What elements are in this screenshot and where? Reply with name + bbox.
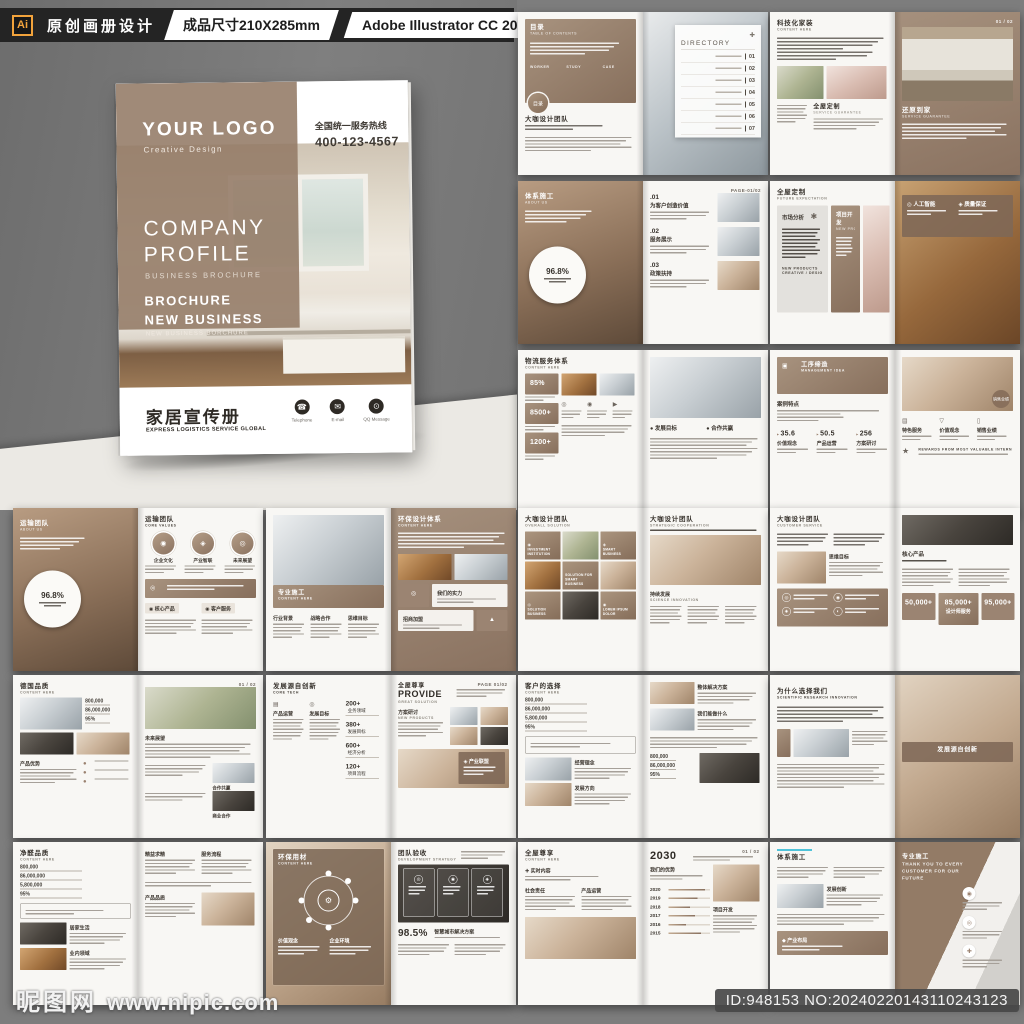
- text-bar: [958, 214, 982, 216]
- column: [777, 531, 830, 547]
- stock-design-poster: YOUR LOGO Creative Design 全国统一服务热线 400-1…: [0, 0, 1024, 1024]
- section-label: 方案研讨: [856, 439, 893, 447]
- text-bar: [977, 439, 995, 440]
- text-bar: [477, 889, 493, 891]
- panel-brownT: ◎ 人工智能◈ 质量保证: [902, 195, 1013, 237]
- column: ▸50.5: [817, 428, 854, 438]
- timeline-row: 2020: [650, 887, 710, 893]
- photo-placeholder: [273, 515, 384, 585]
- photo-placeholder: [713, 865, 760, 902]
- diagram-node: [326, 924, 332, 930]
- column: ◈: [782, 606, 791, 616]
- spread-title: 体系施工: [777, 853, 888, 861]
- column: [561, 373, 596, 395]
- text-bar: [650, 451, 752, 452]
- logo-subtitle: Creative Design: [143, 144, 223, 154]
- text-bar: [650, 252, 687, 253]
- row: 发展创新: [777, 884, 888, 908]
- text-bar: [477, 886, 494, 888]
- stat: 98.5%: [398, 927, 431, 939]
- brochure-page: 目录TABLE OF CONTENTSWORKERSTUDYCASE目录大咖设计…: [518, 12, 643, 175]
- spread-subtitle: CREATIVE / DESIGN: [782, 271, 823, 275]
- directory-item: 03: [681, 75, 755, 87]
- text-bar: [201, 623, 249, 624]
- timeline-row: 2016: [650, 922, 710, 928]
- spread-title: 专业施工: [902, 853, 1013, 860]
- photo-block: [902, 515, 1013, 545]
- text-bar: [833, 877, 865, 878]
- item-number: .03: [650, 261, 714, 269]
- section-label: 政策扶持: [650, 270, 714, 278]
- text-bar: [525, 147, 632, 148]
- column: STUDY: [566, 64, 599, 69]
- photo-placeholder: [863, 205, 890, 312]
- triangle-icon: ▲: [481, 616, 502, 622]
- column: 精益求精: [145, 849, 198, 876]
- row: ▸35.6▸50.5▸256: [777, 428, 888, 438]
- column: 2030: [650, 849, 690, 863]
- photo-placeholder: [717, 227, 759, 256]
- placeholder-text-bars: [587, 410, 610, 418]
- column: [481, 707, 509, 725]
- text-bar: [575, 771, 628, 772]
- panel-glass: 环保用材CONTENT HERE⚙价值观念企业环境: [273, 849, 384, 985]
- text-bar: [398, 546, 464, 548]
- row: ◈: [782, 606, 830, 616]
- text-bar: [902, 572, 950, 573]
- row: 我们的优势202020192018201720162015项目开发: [650, 865, 761, 940]
- contact-icons: ☎ Telephone ✉ E-mail ⊙ QQ Message: [291, 398, 390, 422]
- text-bar: [145, 863, 192, 864]
- row: 产品优势●●●: [20, 758, 131, 785]
- section-label: 发展方向: [575, 784, 635, 792]
- text-bar: [587, 417, 599, 418]
- item-icon: ◎: [782, 593, 791, 602]
- text-bar: [530, 49, 609, 51]
- placeholder-text-bars: [725, 606, 759, 624]
- stat: 85,000+: [943, 598, 973, 606]
- circle-icon: ◉: [152, 532, 174, 554]
- text-bar: [201, 869, 251, 870]
- placeholder-text-bars: [525, 896, 578, 910]
- spacer: [782, 260, 823, 266]
- photo-block: [273, 515, 384, 585]
- directory-item-label-bar: [715, 92, 741, 94]
- text-bar: [273, 624, 304, 625]
- placeholder-text-bars: [348, 624, 382, 638]
- circle-label: 未来展望: [233, 556, 252, 563]
- panel-brown2: 50,000+: [902, 593, 935, 620]
- row: [902, 567, 1013, 589]
- text-bar: [777, 764, 885, 765]
- spacer: [777, 908, 888, 912]
- panel-brown: ◎◉◈◐: [777, 588, 888, 626]
- text-bar: [278, 953, 304, 955]
- text-bar: [817, 449, 848, 450]
- text-bar: [713, 931, 740, 932]
- header-title: 原创画册设计: [47, 15, 155, 36]
- text-bar: [561, 417, 573, 418]
- column: ✱: [810, 212, 822, 222]
- photo-placeholder: [201, 892, 254, 925]
- text-bar: [650, 612, 678, 613]
- text-bar: [777, 118, 805, 119]
- text-bar: [443, 886, 460, 888]
- text-bar: [398, 722, 443, 723]
- text-bar: [575, 803, 610, 804]
- column: 发展方向: [575, 783, 635, 807]
- section-label: 我们的优势: [650, 866, 710, 874]
- column: 经营理念: [575, 757, 635, 781]
- column: ◎: [150, 583, 164, 592]
- core-product-chip: ◉ 核心产品: [145, 603, 179, 614]
- text-bar: [836, 240, 852, 242]
- coop-label: ● 合作共赢: [706, 424, 759, 432]
- text-bar: [525, 137, 632, 138]
- text-bar: [278, 949, 317, 951]
- text-bar: [827, 901, 877, 902]
- column: [398, 942, 451, 957]
- text-bar: [278, 946, 320, 948]
- watermark-url: www.nipic.com: [107, 990, 279, 1016]
- text-bar: [777, 55, 867, 57]
- text-bar: [403, 624, 462, 625]
- stat-item: 200+业务领域: [346, 699, 384, 716]
- brochure-page: 发展源自创新CORE TECH▤产品运营◎发展目标200+业务领域380+发展目…: [266, 675, 391, 838]
- column: [845, 592, 882, 602]
- section-label: 发展目标: [309, 709, 342, 717]
- text-bar: [725, 606, 757, 607]
- timeline-year: 2020: [650, 887, 665, 893]
- text-bar: [464, 770, 494, 772]
- photo-block: [650, 709, 694, 731]
- spread-title: 大咖设计团队: [777, 515, 888, 523]
- spread-pro-construction: 专业施工CONTENT HERE行业背景战略合作思维目标环保设计体系CONTEN…: [266, 508, 516, 671]
- text-bar: [777, 877, 809, 878]
- section-label: 思维目标: [348, 614, 382, 622]
- photo-block: [599, 373, 634, 395]
- location-icon: ◉: [587, 401, 592, 407]
- circle-label: 产业智联: [193, 556, 212, 563]
- text-bar: [525, 140, 626, 141]
- placeholder-text-bars: [434, 937, 507, 938]
- section-label: 价值观念: [278, 936, 326, 944]
- spacer: [902, 682, 1013, 742]
- row: .02服务展示: [650, 227, 761, 256]
- watermark-logo: 昵图网: [16, 982, 97, 1017]
- stat: ▸50.5: [817, 429, 854, 437]
- directory-item-number: 07: [745, 125, 755, 131]
- cover-title-line1: COMPANY: [143, 216, 265, 241]
- text-bar: [650, 280, 709, 281]
- service-icon: ▤: [902, 418, 908, 424]
- stat-divider: [346, 778, 379, 779]
- cover-bottom-band: 家居宣传册 EXPRESS LOGISTICS SERVICE GLOBAL ☎…: [119, 386, 412, 456]
- row: ◈◐: [782, 606, 883, 616]
- text-bar: [525, 150, 591, 151]
- text-bar: [693, 859, 730, 860]
- text-bar: [777, 533, 828, 535]
- text-bar: [902, 569, 953, 570]
- row: 98.5%智慧城市解决方案: [398, 926, 509, 940]
- text-bar: [963, 963, 1000, 964]
- row: ◎◉: [782, 592, 883, 602]
- text-bar: [958, 569, 1009, 570]
- spread-transport-team: 运输团队ABOUT US96.8%运输团队CORE VALUES◉企业文化◈产业…: [13, 508, 263, 671]
- photo-block: [525, 783, 572, 806]
- text-bar: [145, 753, 250, 754]
- column: [717, 261, 759, 290]
- section-label: 产品优势: [20, 759, 80, 767]
- text-bar: [777, 420, 818, 421]
- photo-placeholder: [481, 707, 509, 725]
- stat-item: 600+经济分析: [346, 741, 384, 758]
- placeholder-text-bars: [561, 410, 584, 418]
- directory-title: DIRECTORY: [681, 39, 755, 50]
- text-bar: [794, 608, 828, 610]
- row: 思维目标: [777, 551, 888, 583]
- text-bar: [273, 738, 292, 739]
- text-bar: [687, 612, 715, 613]
- section-label: 持续发展: [650, 590, 761, 598]
- figure-label-bar: [85, 713, 110, 714]
- text-bar: [687, 609, 717, 610]
- spacer: [902, 545, 1013, 549]
- section-label: 服务展示: [650, 236, 714, 244]
- brochure-page: 环保设计体系CONTENT HERE◎我们的实力招商加盟▲: [391, 508, 516, 671]
- spacer: [777, 699, 888, 704]
- placeholder-text-bars: [309, 719, 342, 740]
- diagram-node: [299, 897, 305, 903]
- diagram-node: [326, 870, 332, 876]
- column: [599, 373, 634, 395]
- text-bar: [581, 902, 626, 903]
- column: ◎发展目标: [309, 699, 342, 783]
- row: ● 发展目标● 合作共赢: [650, 423, 761, 433]
- text-bar: [845, 612, 866, 614]
- text-bar: [827, 894, 883, 895]
- text-bar: [403, 628, 440, 629]
- text-bar: [777, 710, 878, 712]
- text-bar: [409, 893, 420, 895]
- placeholder-text-bars: [581, 896, 634, 910]
- text-bar: [145, 916, 176, 917]
- text-bar: [145, 757, 210, 758]
- figure-value: 86,000,000: [525, 706, 636, 712]
- text-bar: [525, 396, 555, 397]
- spacer: [20, 861, 131, 863]
- spread-subtitle: STRATEGIC COOPERATION: [650, 524, 761, 528]
- column: [481, 727, 509, 745]
- directory-item-label-bar: [715, 116, 741, 118]
- text-bar: [697, 702, 733, 703]
- tile-photo-cell: [563, 591, 599, 619]
- column: ◉企业文化: [145, 532, 182, 575]
- text-bar: [145, 765, 206, 766]
- brochure-page: 为什么选择我们SCIENTIFIC RESEARCH INNOVATION: [770, 675, 895, 838]
- column: [833, 531, 886, 547]
- placeholder-text-bars: [650, 529, 761, 531]
- column: 方案研讨: [856, 438, 893, 455]
- text-bar: [777, 108, 805, 109]
- text-bar: [464, 767, 496, 769]
- text-bar: [348, 624, 379, 625]
- panel-phwarm: ◈ 产业联盟: [398, 749, 509, 788]
- photo-block: [450, 727, 478, 745]
- cover-title-sub: BUSINESS BROCHURE: [145, 270, 262, 280]
- section-label: 特色服务: [902, 426, 936, 434]
- text-bar: [650, 249, 706, 250]
- photo-block: [525, 757, 572, 780]
- column: 800,00086,000,00095%: [85, 697, 129, 729]
- column: ◎: [403, 868, 434, 916]
- text-bar: [20, 541, 79, 543]
- text-bar: [525, 902, 570, 903]
- placeholder-text-bars: [777, 37, 888, 49]
- figure-label-bar: [650, 769, 676, 770]
- stat: 95,000+: [986, 598, 1009, 606]
- text-bar: [902, 130, 995, 132]
- text-bar: [581, 899, 628, 900]
- photo-placeholder: [525, 917, 636, 959]
- photo-block: [777, 551, 826, 583]
- text-bar: [26, 913, 74, 914]
- row: [777, 66, 888, 99]
- row: 方案研讨NEW PRODUCTS: [398, 707, 509, 745]
- text-bar: [525, 876, 598, 877]
- text-bar: [525, 210, 592, 212]
- column: ★: [902, 447, 915, 457]
- text-bar: [70, 965, 120, 966]
- placeholder-text-bars: [185, 565, 222, 573]
- column: ▶: [613, 399, 636, 420]
- placeholder-text-bars: [525, 455, 558, 460]
- text-bar: [697, 726, 749, 727]
- figure-label-bar: [525, 721, 587, 722]
- text-bar: [963, 909, 987, 910]
- stat: 8500+: [530, 408, 553, 416]
- step-icon: ◎: [963, 916, 976, 929]
- spacer: [902, 118, 1013, 121]
- text-bar: [725, 616, 757, 617]
- figure-label-bar: [525, 730, 587, 731]
- text-bar: [902, 575, 948, 576]
- phone-icon: ☎: [294, 399, 309, 414]
- column: [958, 567, 1011, 589]
- text-bar: [273, 630, 301, 631]
- column: [777, 729, 790, 757]
- column: ◎未来展望: [224, 532, 261, 575]
- column: [20, 922, 67, 946]
- spread-subtitle: MANAGEMENT IDEA: [801, 369, 882, 373]
- column: [863, 205, 890, 312]
- photo-block: [777, 884, 824, 908]
- text-bar: [833, 870, 881, 871]
- text-bar: [310, 624, 341, 625]
- tile-label: SOLUTION BUSINESS: [528, 608, 559, 617]
- ops-icon: ▤: [273, 701, 279, 707]
- spread-title: 为什么选择我们: [777, 687, 888, 695]
- column: ◉ 核心产品: [145, 602, 198, 615]
- column: [794, 592, 831, 602]
- photo-badge: 销售业绩: [992, 390, 1010, 408]
- cover-banner-line1: BROCHURE: [144, 292, 231, 308]
- text-bar: [309, 738, 328, 739]
- text-bar: [713, 928, 754, 929]
- placeholder-text-bars: [833, 533, 886, 545]
- photo-placeholder: [454, 554, 507, 580]
- text-bar: [777, 770, 874, 771]
- alliance-label: ◈ 产业联盟: [464, 757, 500, 765]
- text-bar: [201, 620, 252, 621]
- text-bar: [829, 572, 883, 573]
- text-bar: [963, 966, 987, 967]
- column: [145, 763, 209, 791]
- mockup-scene: YOUR LOGO Creative Design 全国统一服务热线 400-1…: [0, 0, 517, 510]
- column: 商业合作: [212, 791, 254, 819]
- text-bar: [398, 543, 505, 545]
- text-bar: [201, 629, 252, 630]
- stat-divider: [346, 715, 379, 716]
- tile-photo-cell: [600, 561, 636, 589]
- placeholder-text-bars: [697, 719, 759, 730]
- column: [725, 604, 759, 626]
- brochure-page: 大咖设计团队CUSTOMER SERVICE思维目标◎◉◈◐: [770, 508, 895, 671]
- row: ◐: [833, 606, 881, 616]
- section-label: 产品运营: [581, 886, 634, 894]
- photo-placeholder: [650, 357, 761, 418]
- stat-value: 85,000+: [945, 598, 972, 606]
- text-bar: [650, 875, 703, 876]
- text-bar: [777, 417, 844, 418]
- photo-placeholder: [777, 551, 826, 583]
- column: [450, 707, 508, 745]
- text-bar: [398, 539, 493, 541]
- column: [777, 103, 810, 132]
- spread-title: 目录: [530, 23, 631, 31]
- panel-brown2: 95,000+: [981, 593, 1014, 620]
- photo-block: [525, 917, 636, 959]
- text-bar: [525, 143, 620, 144]
- spread-why-us: 为什么选择我们SCIENTIFIC RESEARCH INNOVATION发展源…: [770, 675, 1020, 838]
- row: 85%8500+1200+◎◉▶: [525, 373, 636, 462]
- row: ▤特色服务▽价值观念▯销售业绩: [902, 416, 1013, 442]
- placeholder-text-bars: [958, 210, 1006, 215]
- photo-block: [20, 922, 67, 944]
- column: 项目开发NEW PRODUCTS: [831, 205, 860, 312]
- text-bar: [145, 629, 196, 630]
- spread-thank-you: 体系施工发展创新◆ 产业布局专业施工THANK YOU TO EVERY CUS…: [770, 842, 1020, 1005]
- column: [777, 551, 826, 583]
- spread-german-quality: 德国品质CONTENT HERE800,00086,000,00095%产品优势…: [13, 675, 263, 838]
- timeline-year: 2018: [650, 904, 665, 910]
- placeholder-text-bars: [398, 944, 451, 955]
- placeholder-text-bars: [457, 689, 508, 697]
- column: 产品运营: [581, 885, 634, 912]
- text-bar: [713, 925, 757, 926]
- spread-title: 专业施工: [278, 589, 379, 596]
- placeholder-text-bars: [650, 280, 714, 288]
- tile-label-cell: ◎SOLUTION BUSINESS: [525, 591, 561, 619]
- column: [20, 948, 67, 972]
- placeholder-text-bars: [777, 105, 810, 123]
- placeholder-text-bars: [530, 42, 631, 54]
- column: [94, 776, 130, 785]
- column: 我们的实力: [432, 584, 507, 607]
- text-bar: [725, 609, 755, 610]
- column: ▽价值观念: [939, 416, 973, 442]
- row: 合作共赢: [145, 763, 256, 791]
